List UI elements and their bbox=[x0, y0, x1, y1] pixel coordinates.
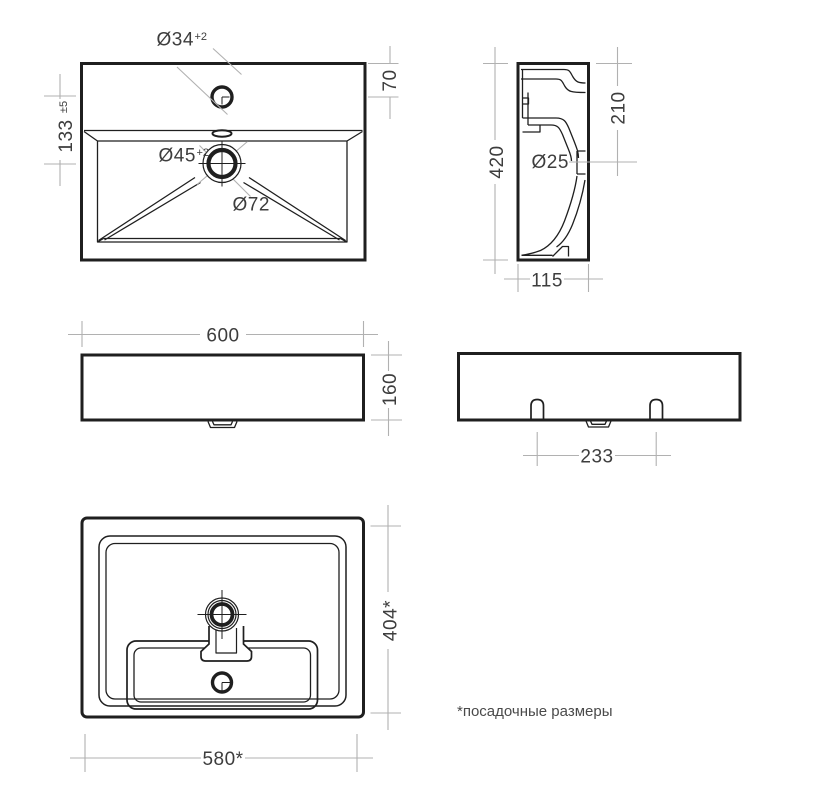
side-view: Ø25 420 210 115 bbox=[483, 47, 637, 292]
dim-mounting-depth: 404* bbox=[371, 505, 402, 730]
dim-overall-height: 420 bbox=[483, 47, 508, 274]
dim-mount-slot-spacing-value: 233 bbox=[580, 447, 613, 468]
dim-mounting-width-value: 580* bbox=[202, 749, 243, 770]
dim-overall-height-value: 420 bbox=[487, 145, 508, 178]
dim-mounting-depth-value: 404* bbox=[381, 600, 402, 641]
dim-faucet-to-drain-value: 133 bbox=[56, 119, 77, 152]
bottom-view: 404* 580* bbox=[70, 505, 402, 772]
dim-apron-height: 160 bbox=[371, 341, 402, 436]
dim-drain-recess-diameter: Ø72 bbox=[233, 195, 270, 216]
dim-faucet-hole-tolerance: +2 bbox=[195, 31, 208, 43]
mounting-slots bbox=[531, 400, 663, 420]
dim-drain-hole-tolerance: +2 bbox=[197, 147, 210, 159]
dim-top-to-overflow-value: 210 bbox=[609, 91, 630, 124]
back-outline bbox=[459, 354, 741, 421]
dim-overall-depth-value: 115 bbox=[531, 271, 563, 292]
dim-mounting-width: 580* bbox=[70, 734, 373, 772]
dim-mount-slot-spacing: 233 bbox=[523, 432, 671, 468]
back-view: 233 bbox=[459, 354, 741, 468]
dim-overall-width-value: 600 bbox=[206, 326, 239, 347]
plan-view: Ø34 +2 Ø45 +2 Ø72 70 133 ±5 bbox=[44, 30, 401, 261]
front-view: 600 160 bbox=[68, 321, 402, 436]
dim-overall-width: 600 bbox=[68, 321, 378, 347]
drawing-sheet: Ø34 +2 Ø45 +2 Ø72 70 133 ±5 Ø25 420 210 bbox=[0, 0, 826, 802]
back-drain-tab bbox=[586, 421, 611, 427]
dim-overflow-hole-diameter: Ø25 bbox=[532, 152, 569, 173]
dim-edge-to-faucet: 70 bbox=[368, 46, 401, 119]
plan-basin-slope-lines bbox=[99, 178, 346, 241]
dim-overall-depth: 115 bbox=[504, 264, 603, 292]
dim-top-to-overflow: 210 bbox=[596, 47, 632, 176]
front-drain-tab bbox=[208, 422, 237, 428]
dim-drain-hole-diameter: Ø45 bbox=[159, 146, 196, 167]
washbasin-technical-drawing: Ø34 +2 Ø45 +2 Ø72 70 133 ±5 Ø25 420 210 bbox=[0, 0, 826, 802]
overflow-slot bbox=[213, 130, 232, 136]
bottom-faucet-hole bbox=[213, 673, 232, 692]
dim-faucet-to-drain: 133 ±5 bbox=[44, 74, 77, 186]
front-outline bbox=[82, 355, 364, 420]
faucet-hole bbox=[212, 87, 232, 107]
dim-faucet-hole-diameter: Ø34 bbox=[157, 30, 194, 51]
mounting-dimensions-footnote: *посадочные размеры bbox=[457, 703, 612, 720]
dim-edge-to-faucet-value: 70 bbox=[380, 69, 401, 91]
dim-apron-height-value: 160 bbox=[380, 373, 401, 406]
dim-faucet-to-drain-tolerance: ±5 bbox=[58, 101, 70, 113]
